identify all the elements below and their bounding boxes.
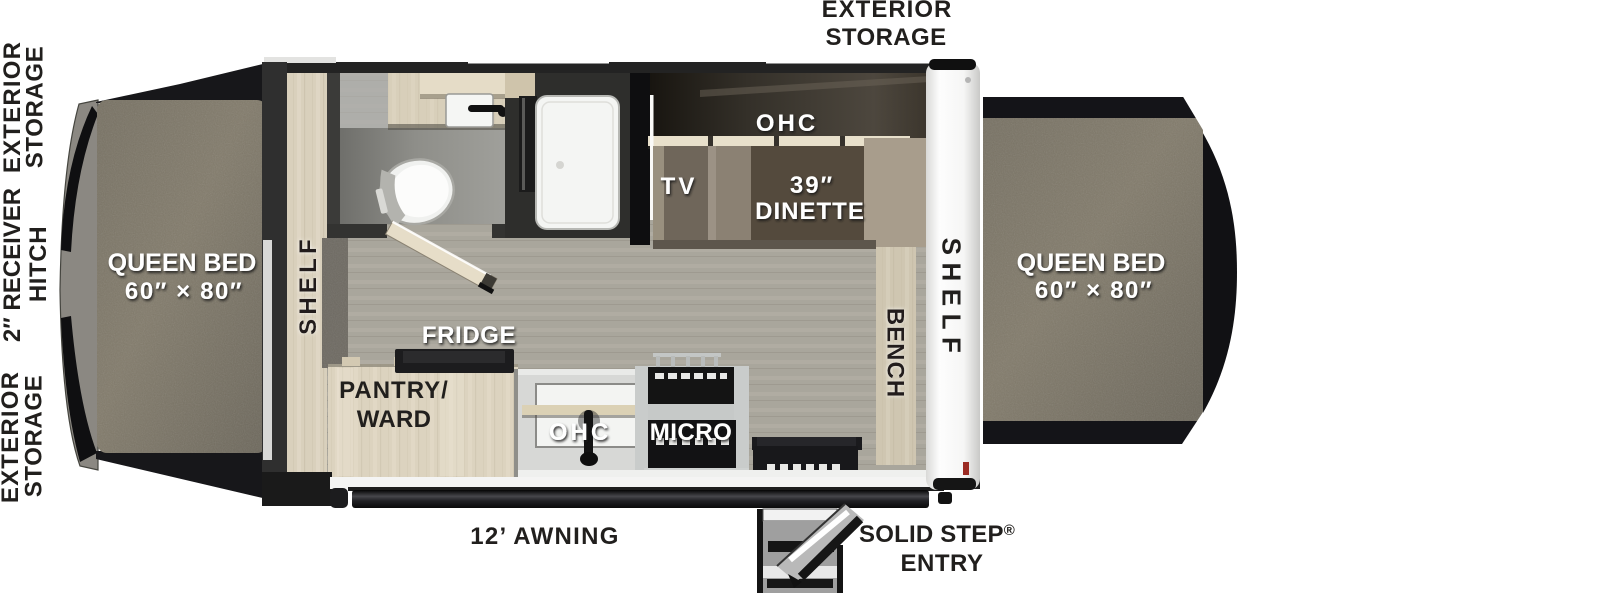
svg-text:HITCH: HITCH	[25, 226, 52, 302]
svg-text:SHELF: SHELF	[937, 238, 967, 361]
svg-text:12’ AWNING: 12’ AWNING	[470, 523, 619, 550]
svg-text:SOLID STEP®: SOLID STEP®	[859, 521, 1015, 548]
svg-text:QUEEN BED: QUEEN BED	[108, 249, 257, 277]
svg-text:60″ × 80″: 60″ × 80″	[125, 278, 243, 305]
svg-text:2″ RECEIVER: 2″ RECEIVER	[0, 188, 26, 342]
svg-text:QUEEN BED: QUEEN BED	[1017, 249, 1166, 277]
svg-text:60″ × 80″: 60″ × 80″	[1035, 277, 1153, 304]
svg-text:STORAGE: STORAGE	[825, 24, 946, 51]
svg-text:WARD: WARD	[357, 406, 432, 433]
svg-text:FRIDGE: FRIDGE	[422, 322, 516, 349]
svg-text:ENTRY: ENTRY	[901, 550, 984, 577]
svg-text:39″: 39″	[790, 172, 834, 199]
svg-text:SHELF: SHELF	[295, 235, 322, 335]
svg-text:DINETTE: DINETTE	[755, 198, 865, 225]
svg-text:EXTERIOR: EXTERIOR	[822, 0, 953, 23]
svg-text:BENCH: BENCH	[882, 308, 909, 398]
svg-text:TV: TV	[661, 173, 698, 200]
svg-text:MICRO: MICRO	[650, 419, 733, 446]
svg-text:STORAGE: STORAGE	[21, 375, 48, 497]
svg-text:OHC: OHC	[549, 419, 611, 446]
svg-text:STORAGE: STORAGE	[22, 46, 49, 168]
svg-text:OHC: OHC	[756, 110, 818, 137]
svg-text:PANTRY/: PANTRY/	[339, 377, 449, 404]
